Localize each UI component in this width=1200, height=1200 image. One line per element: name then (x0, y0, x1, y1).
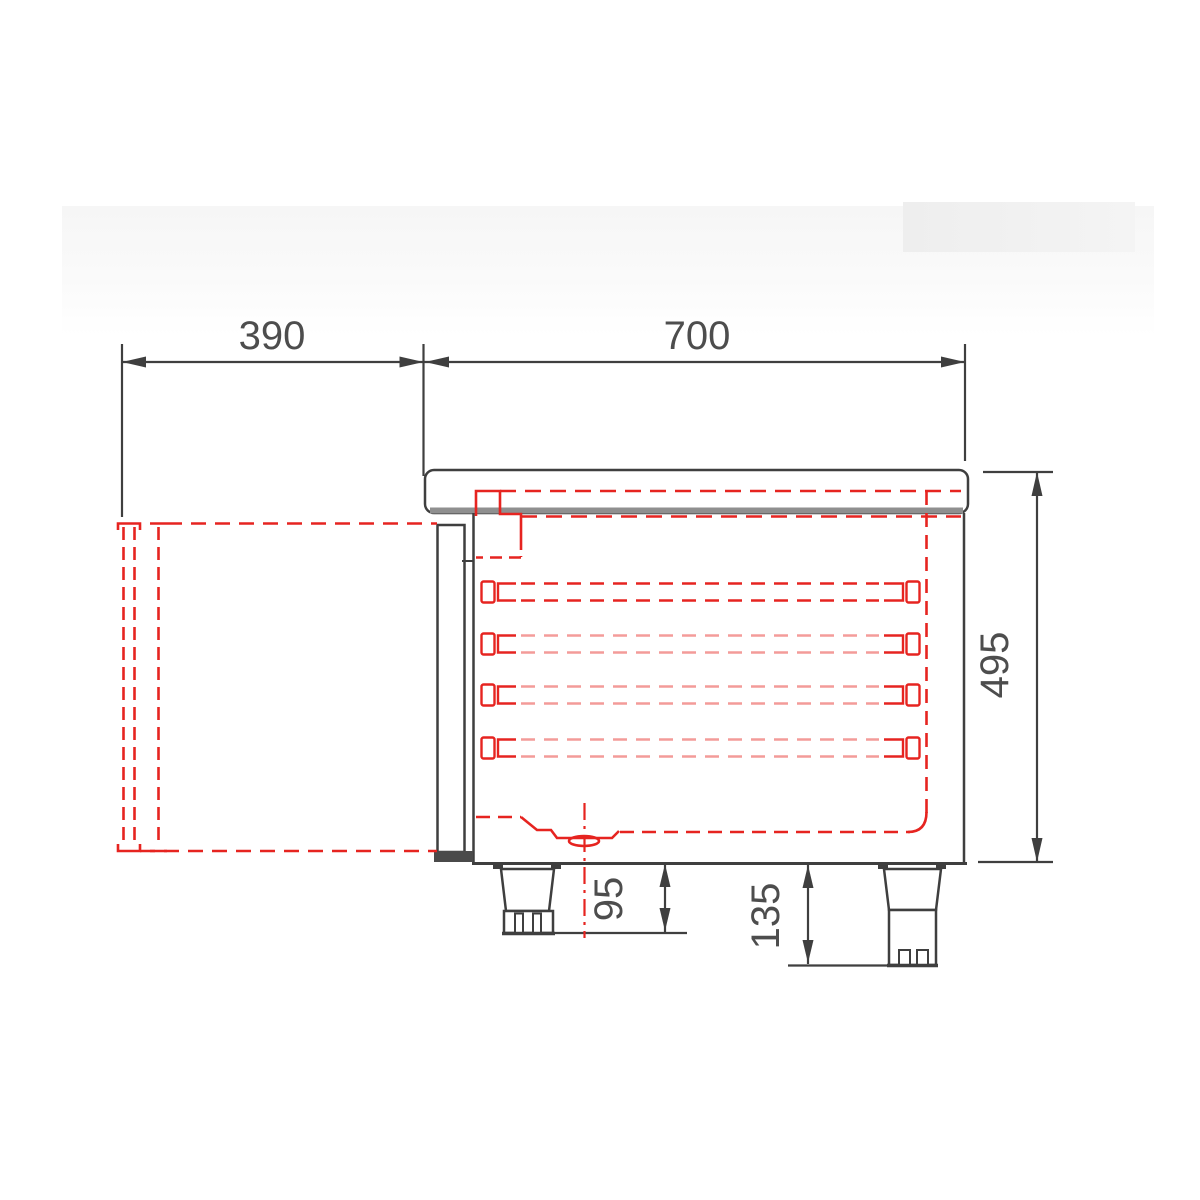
cabinet-body (425, 470, 968, 864)
legs (493, 863, 946, 966)
rail-3 (482, 685, 920, 706)
rail-4-right-bracket (884, 740, 903, 757)
rail-2-left-bracket (498, 636, 516, 653)
arrow-95-bottom (660, 908, 671, 931)
dim-text-700: 700 (664, 314, 731, 358)
door-closed (438, 525, 465, 852)
rail-1-right-stop (907, 582, 920, 603)
rail-2-right-bracket (884, 636, 903, 653)
rail-2-right-stop (907, 634, 920, 655)
rail-1-left-bracket (498, 584, 516, 601)
rail-2 (482, 634, 920, 655)
rail-3-right-bracket (884, 687, 903, 704)
left-foot-slot-2 (533, 914, 541, 934)
rail-4-left-stop (482, 738, 495, 759)
rail-2-left-stop (482, 634, 495, 655)
arrow-135-bottom (803, 940, 814, 963)
drawing-canvas: 390 700 495 95 135 (0, 0, 1200, 1200)
right-leg-body (884, 869, 941, 910)
liner-rear-corner (908, 812, 927, 832)
arrow-95-top (660, 864, 671, 887)
rail-1 (482, 582, 920, 603)
right-foot-notch-2 (917, 950, 928, 966)
rail-4 (482, 738, 920, 759)
dim-text-95: 95 (587, 877, 631, 922)
open-door-top-cap (118, 524, 140, 531)
hinge-bottom-bracket (434, 851, 473, 862)
left-leg-foot (504, 911, 553, 933)
dim-text-390: 390 (239, 314, 306, 358)
left-foot-slot-1 (515, 914, 523, 934)
drain-profile (521, 817, 619, 838)
arrow-495-top (1032, 472, 1043, 496)
dim-text-135: 135 (744, 883, 788, 950)
open-door-bottom-cap (118, 844, 140, 851)
arrow-700-right (941, 357, 965, 368)
arrow-700-left (425, 357, 449, 368)
left-leg-body (501, 869, 554, 911)
rail-1-left-stop (482, 582, 495, 603)
right-foot-notch-1 (899, 950, 910, 966)
arrow-390-left (122, 357, 146, 368)
rail-3-left-stop (482, 685, 495, 706)
open-door-dashed (118, 524, 437, 852)
technical-drawing-page: 390 700 495 95 135 (0, 0, 1200, 1200)
rail-4-left-bracket (498, 740, 516, 757)
rail-1-right-bracket (884, 584, 903, 601)
arrow-135-top (803, 865, 814, 888)
arrow-390-right (400, 357, 424, 368)
rail-4-right-stop (907, 738, 920, 759)
dimension-texts: 390 700 495 95 135 (239, 314, 1017, 949)
rail-3-right-stop (907, 685, 920, 706)
arrow-495-bottom (1032, 838, 1043, 862)
rail-3-left-bracket (498, 687, 516, 704)
dim-text-495: 495 (973, 632, 1017, 699)
